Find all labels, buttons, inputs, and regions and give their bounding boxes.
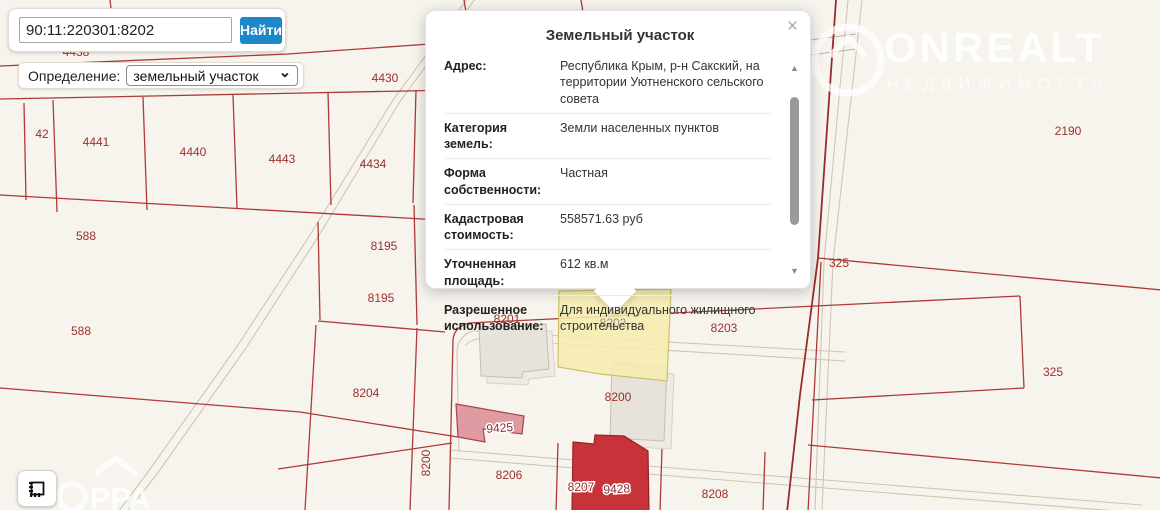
popup-row: Кадастровая стоимость:558571.63 руб <box>444 204 772 250</box>
parcel-label: 8195 <box>371 239 398 253</box>
parcel-label: 4430 <box>372 71 399 85</box>
cadastral-number-input[interactable] <box>19 17 232 43</box>
parcel-label: 8208 <box>702 487 729 501</box>
scroll-up-icon[interactable]: ▲ <box>788 63 801 73</box>
close-icon[interactable]: × <box>787 17 798 36</box>
popup-row: Категория земель:Земли населенных пункто… <box>444 113 772 159</box>
map-tool-button[interactable] <box>17 470 57 507</box>
parcel-label: 588 <box>76 229 96 243</box>
field-label: Адрес: <box>444 58 556 107</box>
onrealt-subtitle: НЕДВИЖИМОСТЬ <box>887 76 1110 93</box>
popup-row: Форма собственности:Частная <box>444 158 772 204</box>
parcel-label: 8207 <box>568 480 595 494</box>
scrollbar-thumb[interactable] <box>790 97 799 225</box>
popup-scrollbar[interactable]: ▲ ▼ <box>788 63 801 276</box>
ruler-icon <box>26 478 48 500</box>
field-label: Разрешенное использование: <box>444 302 556 335</box>
field-value: 558571.63 руб <box>556 211 643 244</box>
parcel-label: 4434 <box>360 157 387 171</box>
definition-panel: Определение: земельный участок ⌄ <box>18 62 304 89</box>
parcel-label: 325 <box>829 256 849 270</box>
search-button[interactable]: Найти <box>240 17 282 44</box>
parcel-label: 9428 <box>603 481 631 496</box>
onrealt-title: ONREALT <box>884 24 1105 71</box>
parcel-label: 8204 <box>353 386 380 400</box>
parcel-label: 4440 <box>180 145 207 159</box>
terra-text: РРА <box>90 481 151 510</box>
definition-select[interactable]: земельный участок ⌄ <box>126 65 298 86</box>
parcel-label: 4441 <box>83 135 110 149</box>
field-value: Республика Крым, р-н Сакский, на террито… <box>556 58 772 107</box>
parcel-label: 8200 <box>605 390 632 404</box>
popup-row: Уточненная площадь:612 кв.м <box>444 249 772 295</box>
parcel-label: 588 <box>71 324 91 338</box>
parcel-label: 9425 <box>486 420 514 436</box>
building-red-9428[interactable] <box>572 435 649 510</box>
parcel-label: 325 <box>1043 365 1063 379</box>
popup-row: Адрес:Республика Крым, р-н Сакский, на т… <box>444 52 772 113</box>
parcel-label: 2190 <box>1055 124 1082 138</box>
search-panel: Найти <box>8 8 286 52</box>
field-label: Форма собственности: <box>444 165 556 198</box>
field-value: Частная <box>556 165 608 198</box>
popup-row: Разрешенное использование:Для индивидуал… <box>444 295 772 341</box>
field-value: Земли населенных пунктов <box>556 120 719 153</box>
scroll-down-icon[interactable]: ▼ <box>788 266 801 276</box>
parcel-label: 8200 <box>419 449 433 476</box>
chevron-down-icon: ⌄ <box>279 68 292 78</box>
parcel-label: 8206 <box>496 468 523 482</box>
parcel-label: 4443 <box>269 152 296 166</box>
popup-title: Земельный участок <box>444 27 796 44</box>
parcel-info-popup: × Земельный участок Адрес:Республика Кры… <box>425 10 811 289</box>
field-label: Уточненная площадь: <box>444 256 556 289</box>
field-value: 612 кв.м <box>556 256 609 289</box>
popup-rows: Адрес:Республика Крым, р-н Сакский, на т… <box>444 52 772 340</box>
field-label: Категория земель: <box>444 120 556 153</box>
definition-label: Определение: <box>28 68 120 84</box>
definition-selected-option: земельный участок <box>133 68 258 84</box>
cadastral-map-app: ONREALT НЕДВИЖИМОСТЬ РРА 443844304244414… <box>0 0 1160 510</box>
field-value: Для индивидуального жилищного строительс… <box>556 302 772 335</box>
field-label: Кадастровая стоимость: <box>444 211 556 244</box>
parcel-label: 8195 <box>368 291 395 305</box>
parcel-label: 42 <box>35 127 49 141</box>
